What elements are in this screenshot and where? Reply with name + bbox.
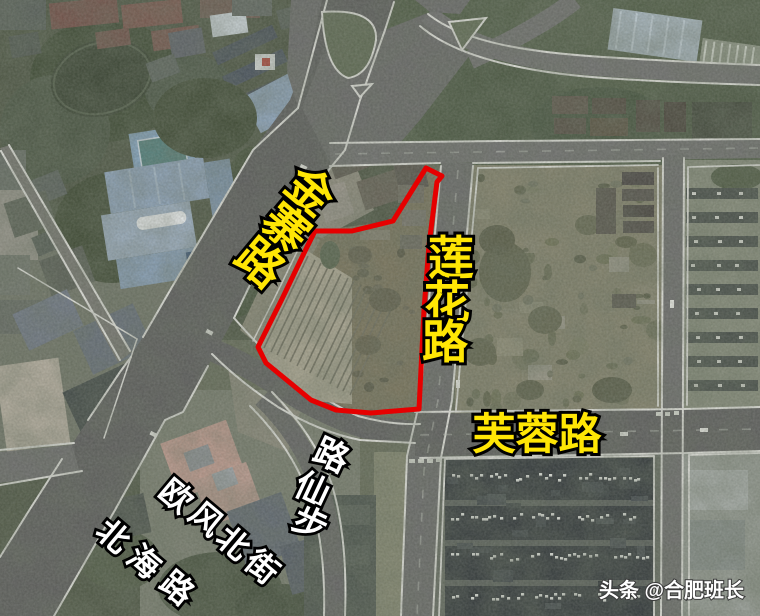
svg-text:头条 @合肥班长: 头条 @合肥班长 <box>599 578 745 602</box>
svg-text:芙蓉路: 芙蓉路 <box>473 411 603 459</box>
svg-text:路: 路 <box>422 316 469 368</box>
